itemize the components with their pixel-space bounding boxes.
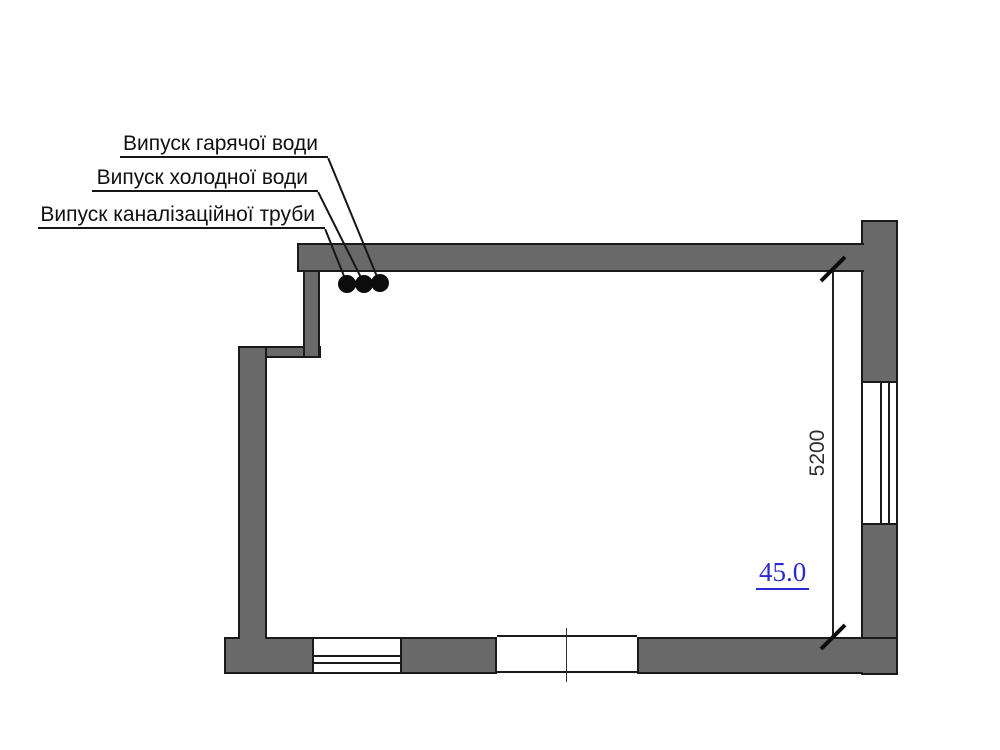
- window-bottom-line-outer-bottom: [313, 672, 400, 674]
- window-right-glass-line-2: [888, 383, 890, 523]
- outlet-dot-hot-water: [371, 274, 389, 292]
- right-wall-upper: [861, 220, 898, 383]
- callout-label-hot-water: Випуск гарячої води: [120, 132, 328, 158]
- callout-label-sewer-pipe: Випуск каналізаційної труби: [38, 203, 325, 229]
- callout-label-cold-water: Випуск холодної води: [92, 166, 318, 192]
- area-value: 45.0: [756, 558, 809, 590]
- dimension-value: 5200: [806, 408, 830, 498]
- window-right-glass-line-1: [880, 383, 882, 523]
- left-wall: [238, 346, 267, 639]
- partition-wall: [303, 270, 320, 358]
- bottom-wall-left-block: [224, 637, 314, 674]
- outlet-dot-sewer: [338, 275, 356, 293]
- window-bottom-glass-line-1: [313, 655, 400, 657]
- bottom-wall-middle-block: [400, 637, 497, 674]
- window-bottom-glass-line-2: [313, 662, 400, 664]
- floorplan-canvas: Випуск гарячої води Випуск холодної води…: [0, 0, 1000, 750]
- window-bottom-line-outer-top: [313, 637, 400, 639]
- corner-join-patch: [863, 639, 896, 673]
- top-wall: [297, 243, 864, 272]
- door-opening-centerline: [566, 628, 567, 682]
- bottom-wall-right-block: [637, 637, 898, 674]
- window-right-line-inner: [861, 383, 863, 523]
- window-right-line-outer: [896, 383, 898, 523]
- dimension-line: [832, 271, 834, 637]
